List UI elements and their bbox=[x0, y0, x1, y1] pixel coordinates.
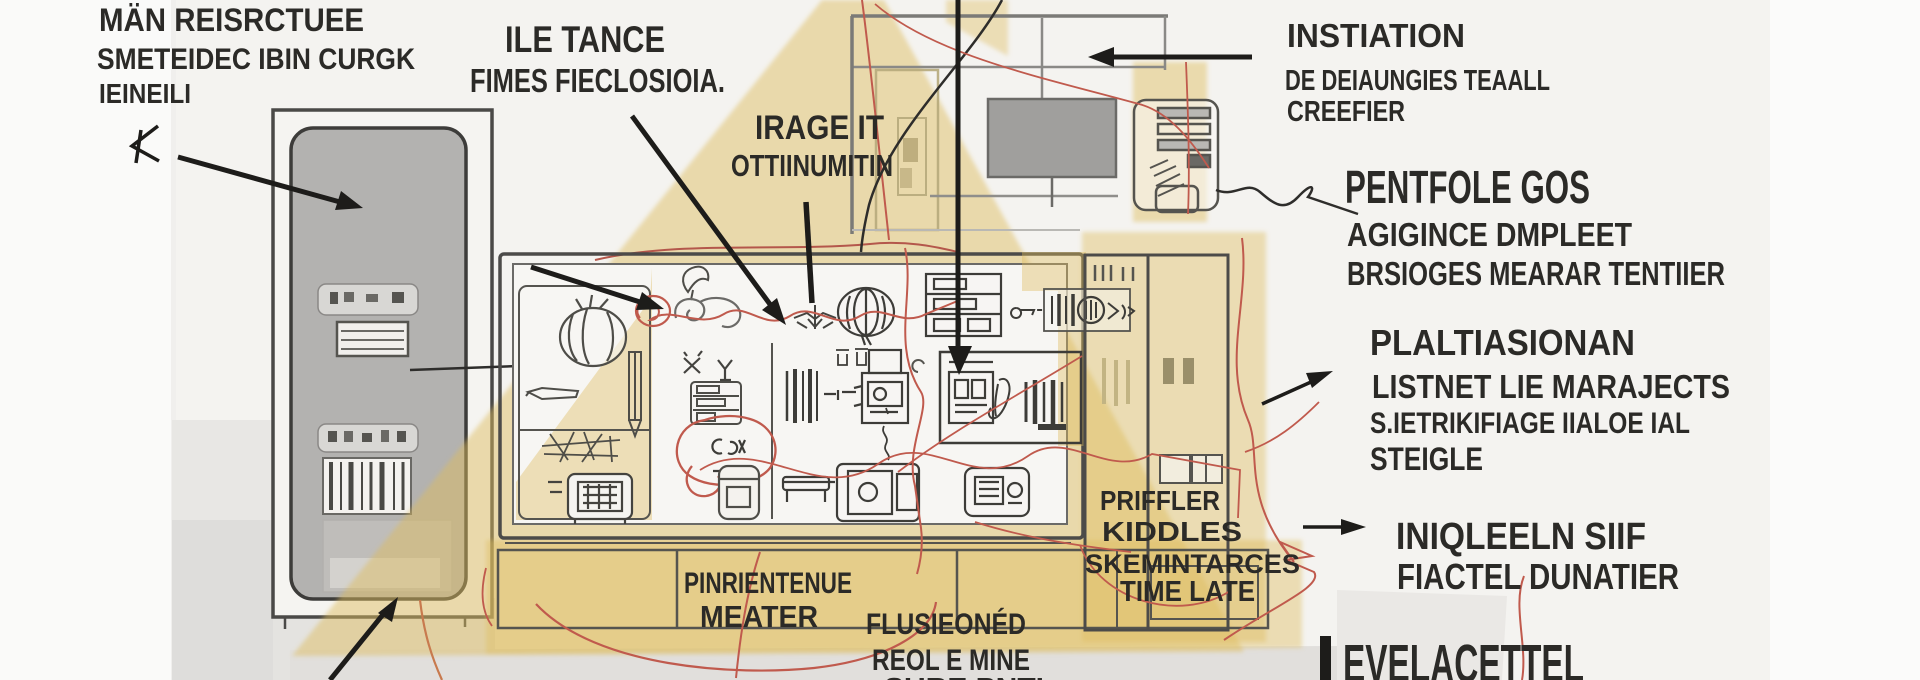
svg-text:IRAGE IT: IRAGE IT bbox=[755, 109, 884, 147]
svg-text:IEINEILI: IEINEILI bbox=[99, 78, 191, 109]
svg-text:PENTFOLE GOS: PENTFOLE GOS bbox=[1345, 161, 1590, 213]
svg-text:FLUSIEONÉD: FLUSIEONÉD bbox=[866, 607, 1026, 641]
svg-text:MEATER: MEATER bbox=[700, 599, 818, 634]
svg-text:ILE TANCE: ILE TANCE bbox=[505, 19, 665, 60]
svg-text:PRIFFLER: PRIFFLER bbox=[1100, 485, 1220, 516]
svg-text:INSTIATION: INSTIATION bbox=[1287, 17, 1465, 54]
svg-text:MÄN REISRCTUEE: MÄN REISRCTUEE bbox=[99, 2, 364, 38]
svg-text:SURE PNTL: SURE PNTL bbox=[884, 673, 1054, 680]
svg-text:SKEMINTARCES: SKEMINTARCES bbox=[1085, 549, 1300, 579]
svg-text:PLALTIASIONAN: PLALTIASIONAN bbox=[1370, 322, 1635, 363]
svg-text:INIQLEELN SIIF: INIQLEELN SIIF bbox=[1396, 516, 1646, 558]
svg-text:BRSIOGES MEARAR TENTIIER: BRSIOGES MEARAR TENTIIER bbox=[1347, 255, 1725, 292]
svg-text:EVELACETTEL: EVELACETTEL bbox=[1343, 634, 1584, 680]
svg-text:S.IETRIKIFIAGE IIALOE IAL: S.IETRIKIFIAGE IIALOE IAL bbox=[1370, 407, 1690, 440]
svg-text:FIMES FIECLOSIOIA.: FIMES FIECLOSIOIA. bbox=[470, 62, 725, 99]
svg-text:TIME LATE: TIME LATE bbox=[1120, 576, 1255, 608]
svg-text:AGIGINCE DMPLEET: AGIGINCE DMPLEET bbox=[1347, 216, 1632, 253]
svg-text:SMETEIDEC IBIN CURGK: SMETEIDEC IBIN CURGK bbox=[97, 43, 415, 76]
svg-text:OTTIINUMITIN: OTTIINUMITIN bbox=[731, 148, 893, 183]
svg-text:KIDDLES: KIDDLES bbox=[1102, 516, 1242, 547]
svg-text:DE DEIAUNGIES TEAALL: DE DEIAUNGIES TEAALL bbox=[1285, 65, 1550, 97]
svg-text:CREEFIER: CREEFIER bbox=[1287, 96, 1405, 128]
svg-text:FIACTEL DUNATIER: FIACTEL DUNATIER bbox=[1397, 556, 1679, 597]
svg-text:PINRIENTENUE: PINRIENTENUE bbox=[684, 567, 852, 600]
svg-text:STEIGLE: STEIGLE bbox=[1370, 441, 1483, 477]
svg-text:LISTNET LIE MARAJECTS: LISTNET LIE MARAJECTS bbox=[1372, 368, 1730, 405]
